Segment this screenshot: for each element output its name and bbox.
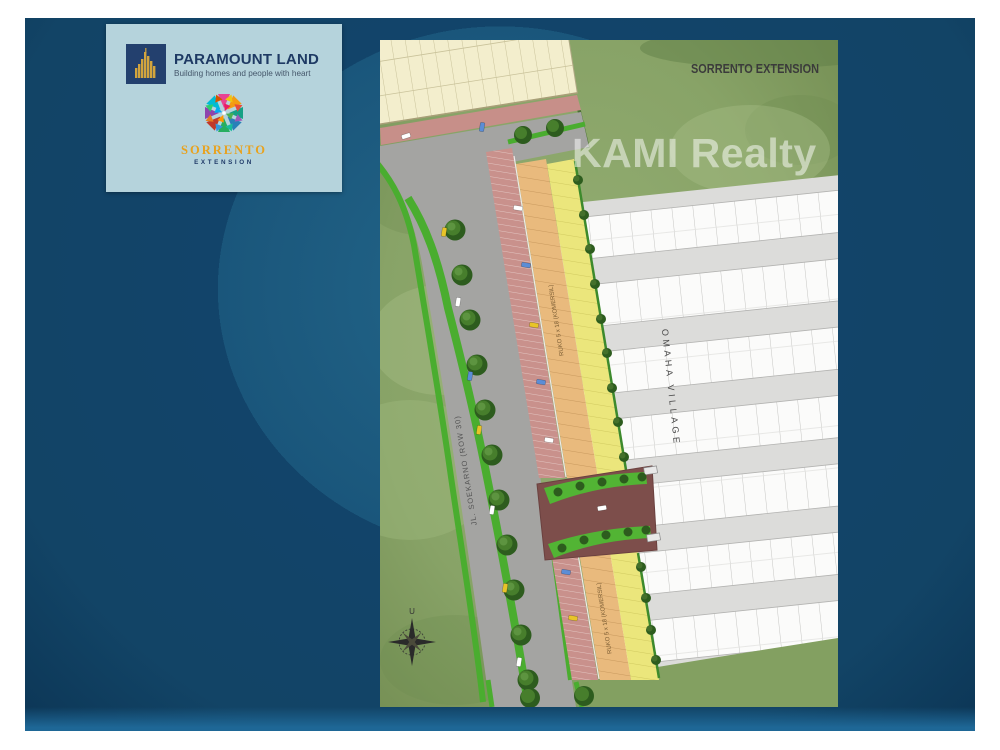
sorrento-name: SORRENTO [106,143,342,158]
presentation-slide: PARAMOUNT LAND Building homes and people… [25,18,975,731]
brand-card: PARAMOUNT LAND Building homes and people… [106,24,342,192]
paramount-logo-icon [126,44,166,84]
sorrento-subtitle: EXTENSION [106,159,342,166]
paramount-name: PARAMOUNT LAND [174,51,319,68]
realty-watermark: KAMI Realty [572,130,817,177]
paramount-tagline: Building homes and people with heart [174,69,319,78]
sorrento-brand: SORRENTO EXTENSION [106,90,342,166]
paramount-text: PARAMOUNT LAND Building homes and people… [174,44,319,78]
siteplan-title: SORRENTO EXTENSION [691,61,819,76]
sorrento-logo-icon [201,90,247,136]
compass-north-label: U [409,607,415,616]
siteplan-figure: U SORRENTO EXTENSION OMAHA VILLAGE JL. S… [380,40,838,707]
paramount-brand: PARAMOUNT LAND Building homes and people… [106,24,342,84]
